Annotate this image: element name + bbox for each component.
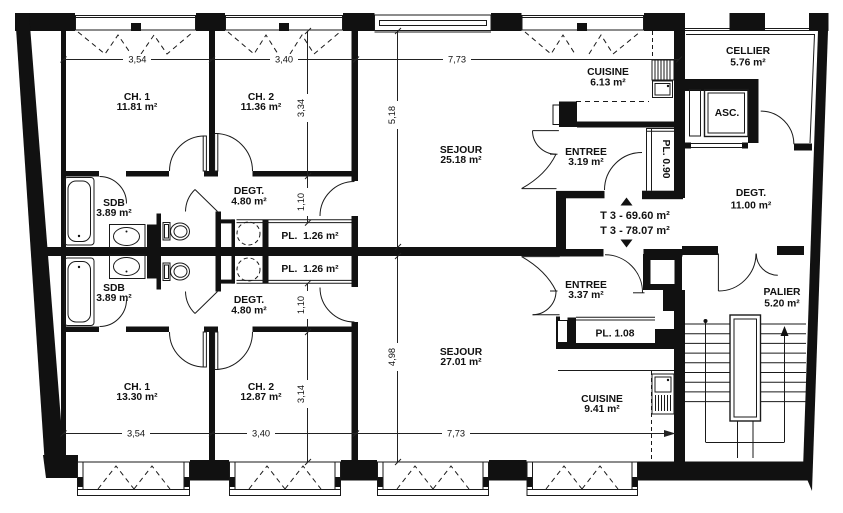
svg-text:PL. 1.26 m²: PL. 1.26 m² [281,231,339,242]
svg-text:4.80 m²: 4.80 m² [231,306,267,317]
svg-text:3,54: 3,54 [127,429,145,439]
svg-text:3.19 m²: 3.19 m² [568,157,604,168]
svg-text:11.36 m²: 11.36 m² [241,102,282,113]
svg-text:PL. 0.90: PL. 0.90 [660,140,671,179]
svg-text:13.30 m²: 13.30 m² [116,392,158,403]
svg-text:CUISINE: CUISINE [587,67,629,78]
svg-text:3,40: 3,40 [252,429,270,439]
svg-text:T 3 - 69.60 m²: T 3 - 69.60 m² [600,210,670,222]
svg-text:DEGT.: DEGT. [234,186,264,197]
svg-text:3.89 m²: 3.89 m² [96,293,132,304]
svg-text:3.37 m²: 3.37 m² [568,290,604,301]
svg-text:7,73: 7,73 [447,429,465,439]
svg-text:11.81 m²: 11.81 m² [117,102,158,113]
svg-text:9.41 m²: 9.41 m² [584,404,620,415]
svg-text:3,54: 3,54 [128,55,147,65]
svg-text:PALIER: PALIER [764,287,802,298]
svg-text:DEGT.: DEGT. [234,295,264,306]
svg-text:4,98: 4,98 [387,348,397,366]
svg-text:3,34: 3,34 [296,99,306,117]
svg-text:PL. 1.26 m²: PL. 1.26 m² [281,264,339,275]
svg-text:DEGT.: DEGT. [736,188,766,199]
svg-text:5.20 m²: 5.20 m² [764,299,800,310]
svg-text:7,73: 7,73 [448,55,466,65]
svg-text:PL. 1.08: PL. 1.08 [596,329,635,340]
svg-text:1,10: 1,10 [296,193,306,211]
svg-text:ASC.: ASC. [715,108,740,119]
svg-text:27.01 m²: 27.01 m² [440,357,482,368]
svg-text:T 3 - 78.07 m²: T 3 - 78.07 m² [600,225,670,237]
svg-text:5.76 m²: 5.76 m² [730,58,766,69]
svg-text:1,10: 1,10 [296,296,306,314]
svg-text:6.13 m²: 6.13 m² [590,78,626,89]
svg-text:CELLIER: CELLIER [726,46,771,57]
svg-text:25.18 m²: 25.18 m² [440,155,482,166]
svg-text:3.89 m²: 3.89 m² [96,208,132,219]
svg-text:12.87 m²: 12.87 m² [240,392,282,403]
svg-text:5,18: 5,18 [387,106,397,124]
svg-text:11.00 m²: 11.00 m² [731,201,772,212]
svg-text:3,40: 3,40 [275,55,293,65]
svg-text:4.80 m²: 4.80 m² [231,197,267,208]
svg-text:3,14: 3,14 [296,385,306,403]
